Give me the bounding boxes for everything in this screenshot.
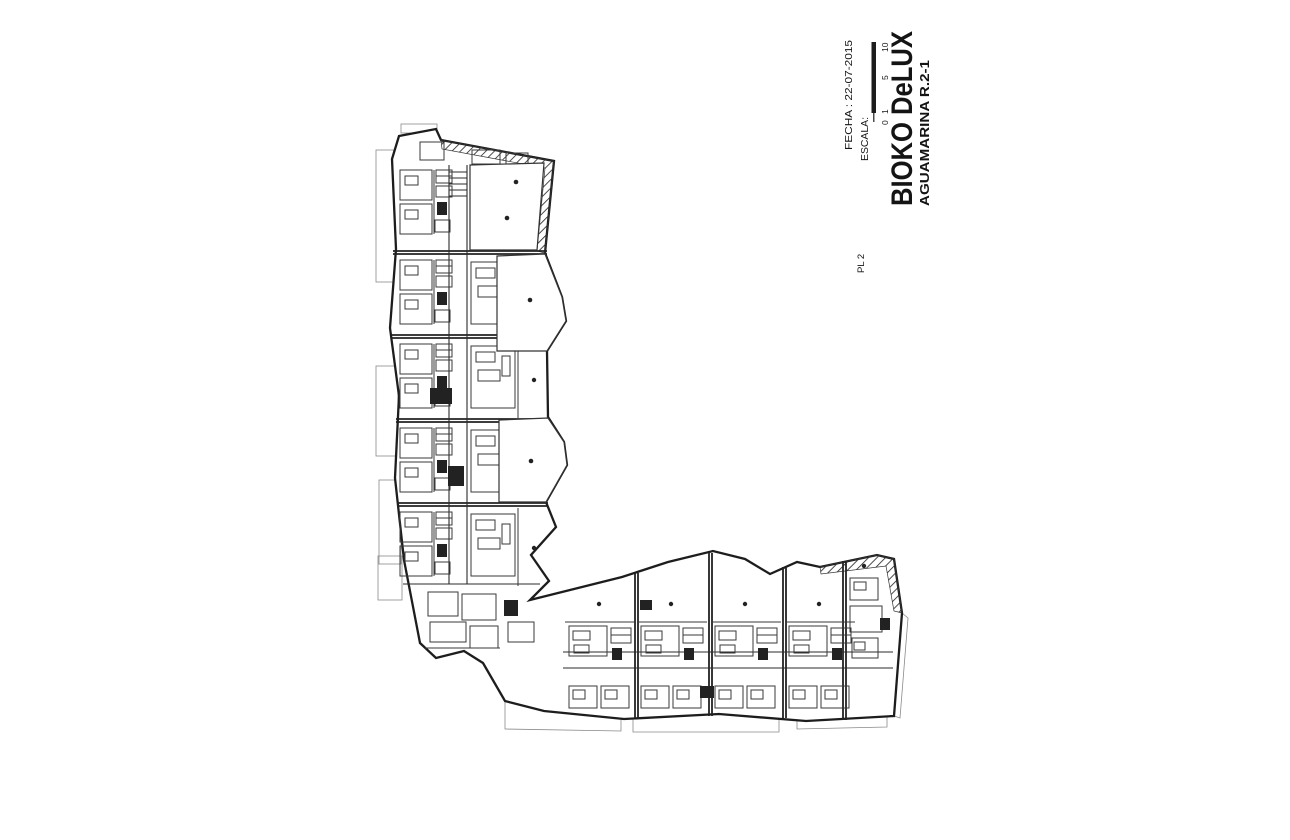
scale-label: ESCALA: [860,117,871,161]
floor-plan-drawing [376,124,908,732]
scale-tick-10: 10 [880,42,890,52]
date-label: FECHA : 22-07-2015 [844,39,855,150]
scale-tick-0: 0 [880,120,890,125]
scale-tick-1: 1 [880,109,890,114]
floor-plan-sheet: BIOKO DeLUX AGUAMARINA R.2-1 ESCALA: FEC… [0,0,1290,840]
screenshot-root: { "sheet": { "title": "BIOKO DeLUX", "su… [0,0,1290,840]
plan-number-label: PL 2 [856,254,867,273]
sheet-title: BIOKO DeLUX [886,31,919,206]
sheet-subtitle: AGUAMARINA R.2-1 [917,60,932,206]
title-block: BIOKO DeLUX AGUAMARINA R.2-1 ESCALA: FEC… [844,31,932,273]
scale-tick-5: 5 [880,75,890,80]
